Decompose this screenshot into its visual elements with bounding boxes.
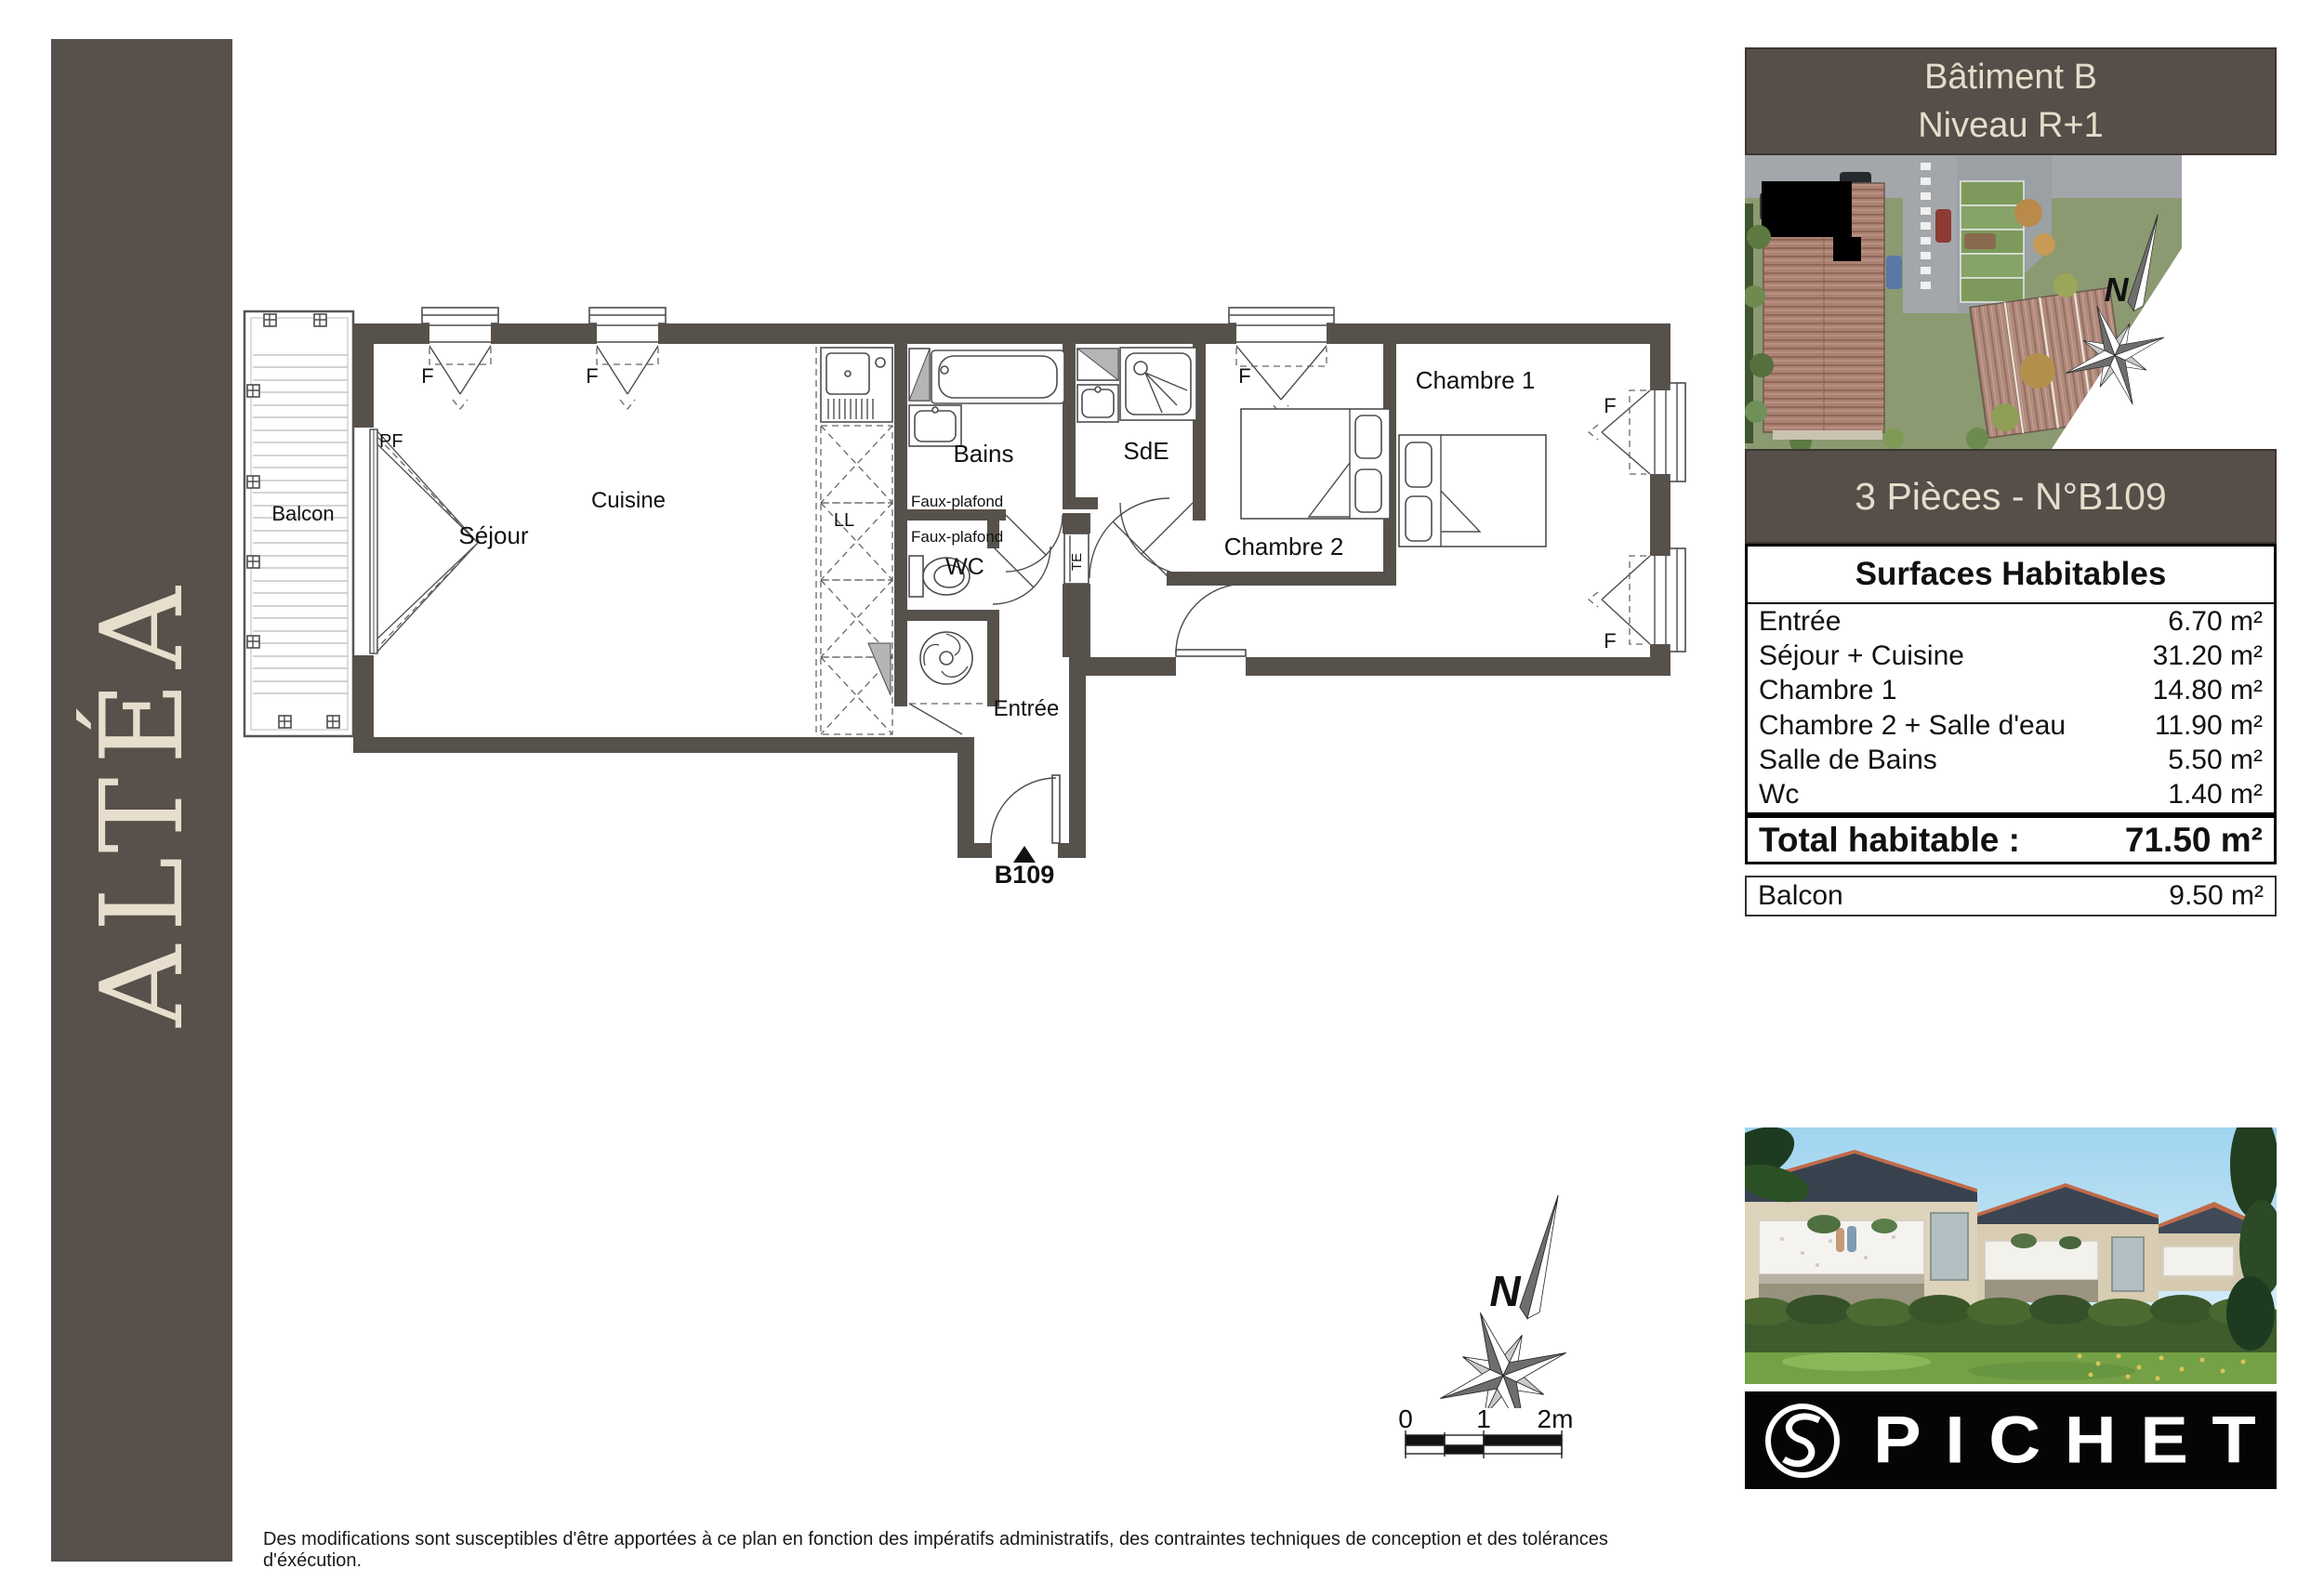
washer-label: LL [834,510,854,531]
bedroom2-bed [1241,409,1390,519]
row-value: 1.40 m² [2168,779,2263,811]
scale-tick-1: 1 [1476,1405,1491,1433]
brand-name: ALTÉA [76,573,208,1027]
disclaimer-text: Des modifications sont susceptibles d'êt… [263,1529,1657,1572]
window [589,308,666,409]
window [422,308,498,409]
false-ceiling-label: Faux-plafond [911,493,1003,510]
table-row: Wc 1.40 m² [1748,778,2274,812]
false-ceiling-label: Faux-plafond [911,528,1003,546]
total-label: Total habitable : [1759,821,2020,860]
site-plan-image: N [1745,155,2277,449]
room-label-kitchen: Cuisine [591,488,666,513]
row-value: 11.90 m² [2155,710,2263,742]
window [1229,308,1334,415]
row-label: Wc [1759,779,1799,811]
plan-sheet: ALTÉA Bâtiment B Niveau R+1 [0,0,2324,1582]
north-label: N [2105,271,2130,309]
compass-icon: N [1419,1148,1587,1408]
row-value: 31.20 m² [2153,640,2263,672]
pichet-emblem-icon [1758,1396,1847,1485]
window-label: F [1238,364,1250,388]
table-row: Entrée 6.70 m² [1748,604,2274,639]
building-header: Bâtiment B Niveau R+1 [1745,47,2277,155]
scale-tick-2: 2m [1538,1405,1574,1433]
table-row: Chambre 1 14.80 m² [1748,674,2274,708]
bedroom1-bed [1399,435,1546,547]
table-row: Salle de Bains 5.50 m² [1748,743,2274,777]
row-label: Séjour + Cuisine [1759,640,1964,672]
balcony-value: 9.50 m² [2169,880,2264,912]
total-value: 71.50 m² [2125,821,2263,860]
row-label: Salle de Bains [1759,745,1937,776]
row-label: Entrée [1759,606,1841,638]
north-label: N [1489,1267,1521,1315]
building-level: Niveau R+1 [1918,101,2104,150]
room-label-entry: Entrée [994,696,1060,721]
developer-logo-text: PICHET [1873,1403,2279,1479]
unit-title: 3 Pièces - N°B109 [1855,475,2166,519]
elec-panel-label: TE [1069,553,1085,571]
floor-plan: Balcon Séjour Cuisine LL Bains SdE WC Fa… [223,297,1710,911]
room-label-bedroom2: Chambre 2 [1224,533,1344,560]
room-label-shower: SdE [1123,437,1169,465]
table-row: Chambre 2 + Salle d'eau 11.90 m² [1748,708,2274,743]
table-row: Séjour + Cuisine 31.20 m² [1748,639,2274,673]
building-name: Bâtiment B [1924,53,2097,101]
room-label-living: Séjour [458,521,528,549]
window-label: F [1604,394,1616,417]
scale-tick-0: 0 [1398,1405,1413,1433]
scale-bar: 0 1 2m [1390,1405,1590,1461]
surfaces-table: Surfaces Habitables Entrée 6.70 m² Séjou… [1745,544,2277,815]
balcony-label: Balcon [1758,880,1843,912]
row-value: 5.50 m² [2168,745,2263,776]
developer-logo-bar: PICHET [1745,1391,2277,1489]
surfaces-title: Surfaces Habitables [1748,547,2274,604]
room-label-bath: Bains [953,440,1013,468]
balcony-row: Balcon 9.50 m² [1745,876,2277,916]
row-value: 6.70 m² [2168,606,2263,638]
kitchen-fixtures [816,347,892,734]
row-label: Chambre 1 [1759,675,1896,706]
unit-banner: 3 Pièces - N°B109 [1745,449,2277,544]
french-door-label: PF [379,431,403,452]
exterior-render-image [1745,1127,2277,1384]
row-value: 14.80 m² [2153,675,2263,706]
unit-number-label: B109 [995,861,1055,889]
window-label: F [1604,629,1616,653]
room-label-wc: WC [945,554,984,580]
room-label-balcony: Balcon [271,502,334,525]
window-label: F [421,364,433,388]
row-label: Chambre 2 + Salle d'eau [1759,710,2066,742]
total-row: Total habitable : 71.50 m² [1745,815,2277,864]
room-label-bedroom1: Chambre 1 [1416,366,1536,394]
brand-sidebar: ALTÉA [51,39,232,1562]
window-label: F [586,364,598,388]
